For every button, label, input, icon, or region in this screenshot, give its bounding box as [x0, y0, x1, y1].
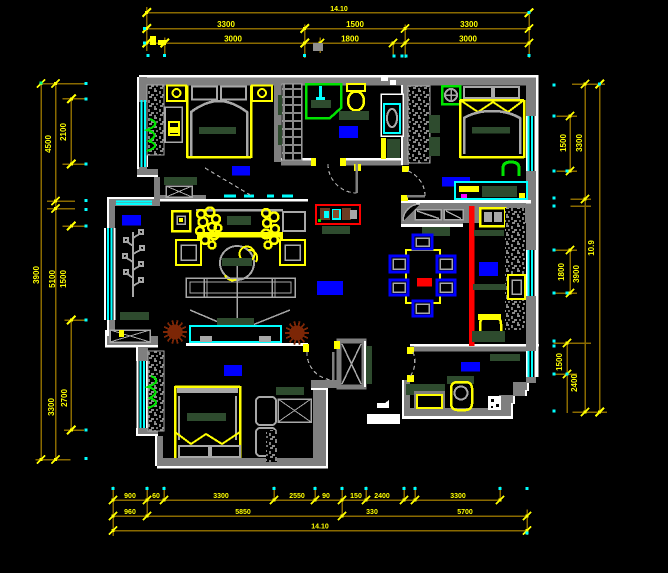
svg-text:1500: 1500 [555, 353, 564, 371]
svg-text:900: 900 [124, 493, 136, 500]
svg-text:5700: 5700 [457, 509, 473, 516]
svg-text:5100: 5100 [48, 270, 57, 288]
svg-text:2700: 2700 [60, 389, 69, 407]
svg-text:2100: 2100 [59, 123, 68, 141]
svg-text:3900: 3900 [32, 266, 41, 284]
svg-text:960: 960 [124, 509, 136, 516]
svg-text:5850: 5850 [235, 509, 251, 516]
svg-text:4500: 4500 [44, 135, 53, 153]
svg-text:3000: 3000 [459, 35, 477, 44]
svg-text:2400: 2400 [570, 374, 579, 392]
svg-text:3300: 3300 [217, 20, 235, 29]
svg-text:150: 150 [350, 493, 362, 500]
svg-text:2400: 2400 [374, 493, 390, 500]
svg-text:14.10: 14.10 [330, 6, 348, 13]
svg-text:3900: 3900 [572, 265, 581, 283]
svg-text:10.9: 10.9 [587, 240, 596, 256]
svg-text:1500: 1500 [559, 134, 568, 152]
svg-text:3300: 3300 [47, 398, 56, 416]
svg-text:330: 330 [366, 509, 378, 516]
svg-text:3000: 3000 [224, 35, 242, 44]
svg-text:3300: 3300 [460, 20, 478, 29]
svg-text:1500: 1500 [59, 270, 68, 288]
svg-text:3300: 3300 [213, 493, 229, 500]
svg-text:60: 60 [152, 493, 160, 500]
svg-text:3300: 3300 [450, 493, 466, 500]
svg-text:1800: 1800 [557, 263, 566, 281]
svg-text:90: 90 [322, 493, 330, 500]
svg-text:1500: 1500 [346, 20, 364, 29]
svg-text:14.10: 14.10 [311, 524, 329, 531]
svg-text:2550: 2550 [289, 493, 305, 500]
svg-text:1800: 1800 [341, 35, 359, 44]
svg-text:3300: 3300 [575, 134, 584, 152]
